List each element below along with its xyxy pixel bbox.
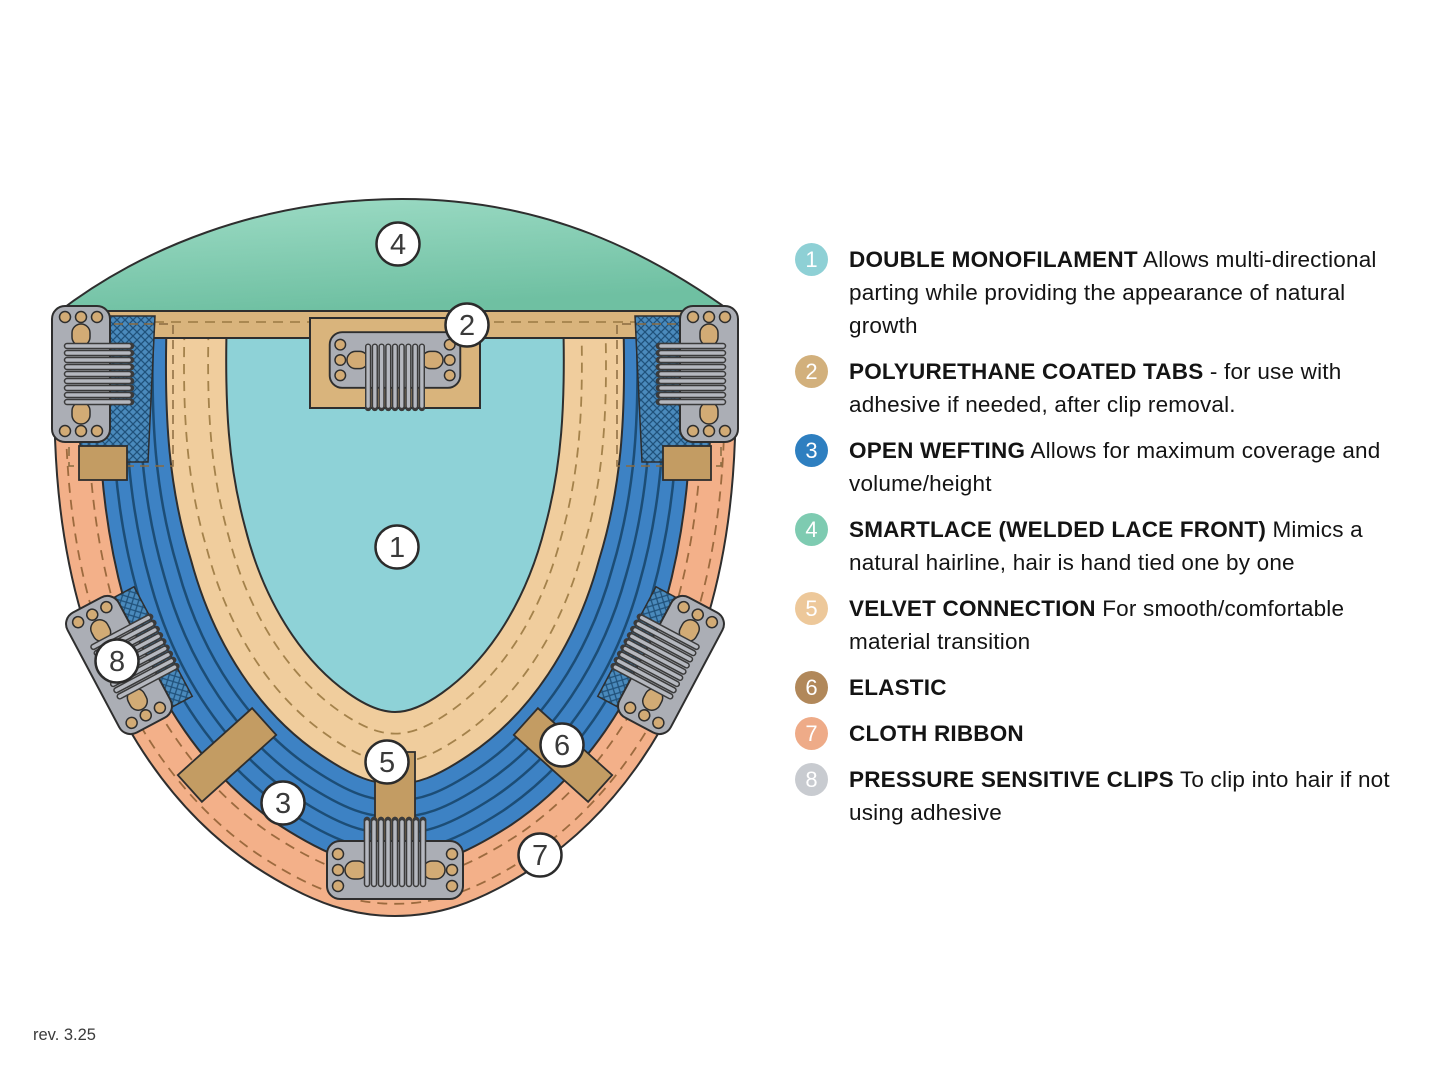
- legend-term-6: ELASTIC: [849, 675, 947, 700]
- callout-3: 3: [262, 782, 305, 825]
- legend-badge-2: 2: [795, 355, 828, 388]
- svg-text:4: 4: [390, 229, 406, 261]
- page: 1 2 3 4 5 6 7 8 1 DOUBLE MONOFILAMENT Al…: [0, 0, 1445, 1085]
- legend-term-7: CLOTH RIBBON: [849, 721, 1024, 746]
- legend-item-polyurethane-tabs: 2 POLYURETHANE COATED TABS - for use wit…: [795, 355, 1410, 421]
- legend-item-pressure-clips: 8 PRESSURE SENSITIVE CLIPS To clip into …: [795, 763, 1410, 829]
- legend-item-elastic: 6 ELASTIC: [795, 671, 1410, 704]
- legend-term-2: POLYURETHANE COATED TABS: [849, 359, 1203, 384]
- callout-8: 8: [96, 640, 139, 683]
- callout-7: 7: [519, 834, 562, 877]
- legend-badge-5: 5: [795, 592, 828, 625]
- legend-badge-7: 7: [795, 717, 828, 750]
- callout-4: 4: [377, 223, 420, 266]
- svg-text:8: 8: [109, 646, 125, 678]
- callout-6: 6: [541, 724, 584, 767]
- callout-1: 1: [376, 526, 419, 569]
- svg-text:2: 2: [459, 310, 475, 342]
- wig-cap-diagram: 1 2 3 4 5 6 7 8: [5, 0, 785, 960]
- elastic-band-top-side: [79, 446, 127, 480]
- legend-term-4: SMARTLACE (WELDED LACE FRONT): [849, 517, 1266, 542]
- legend: 1 DOUBLE MONOFILAMENT Allows multi-direc…: [795, 243, 1410, 842]
- svg-text:7: 7: [532, 840, 548, 872]
- svg-text:3: 3: [275, 788, 291, 820]
- legend-badge-6: 6: [795, 671, 828, 704]
- svg-text:1: 1: [389, 532, 405, 564]
- legend-item-double-monofilament: 1 DOUBLE MONOFILAMENT Allows multi-direc…: [795, 243, 1410, 342]
- legend-badge-1: 1: [795, 243, 828, 276]
- legend-badge-8: 8: [795, 763, 828, 796]
- legend-item-velvet-connection: 5 VELVET CONNECTION For smooth/comfortab…: [795, 592, 1410, 658]
- legend-term-1: DOUBLE MONOFILAMENT: [849, 247, 1138, 272]
- callout-2: 2: [446, 304, 489, 347]
- legend-badge-4: 4: [795, 513, 828, 546]
- legend-badge-3: 3: [795, 434, 828, 467]
- wig-cap-svg: 1 2 3 4 5 6 7 8: [5, 0, 785, 960]
- legend-item-open-wefting: 3 OPEN WEFTING Allows for maximum covera…: [795, 434, 1410, 500]
- revision-label: rev. 3.25: [33, 1026, 96, 1045]
- svg-text:5: 5: [379, 747, 395, 779]
- legend-term-8: PRESSURE SENSITIVE CLIPS: [849, 767, 1174, 792]
- legend-term-3: OPEN WEFTING: [849, 438, 1025, 463]
- legend-item-smartlace: 4 SMARTLACE (WELDED LACE FRONT) Mimics a…: [795, 513, 1410, 579]
- legend-item-cloth-ribbon: 7 CLOTH RIBBON: [795, 717, 1410, 750]
- callout-5: 5: [366, 741, 409, 784]
- svg-text:6: 6: [554, 730, 570, 762]
- legend-term-5: VELVET CONNECTION: [849, 596, 1096, 621]
